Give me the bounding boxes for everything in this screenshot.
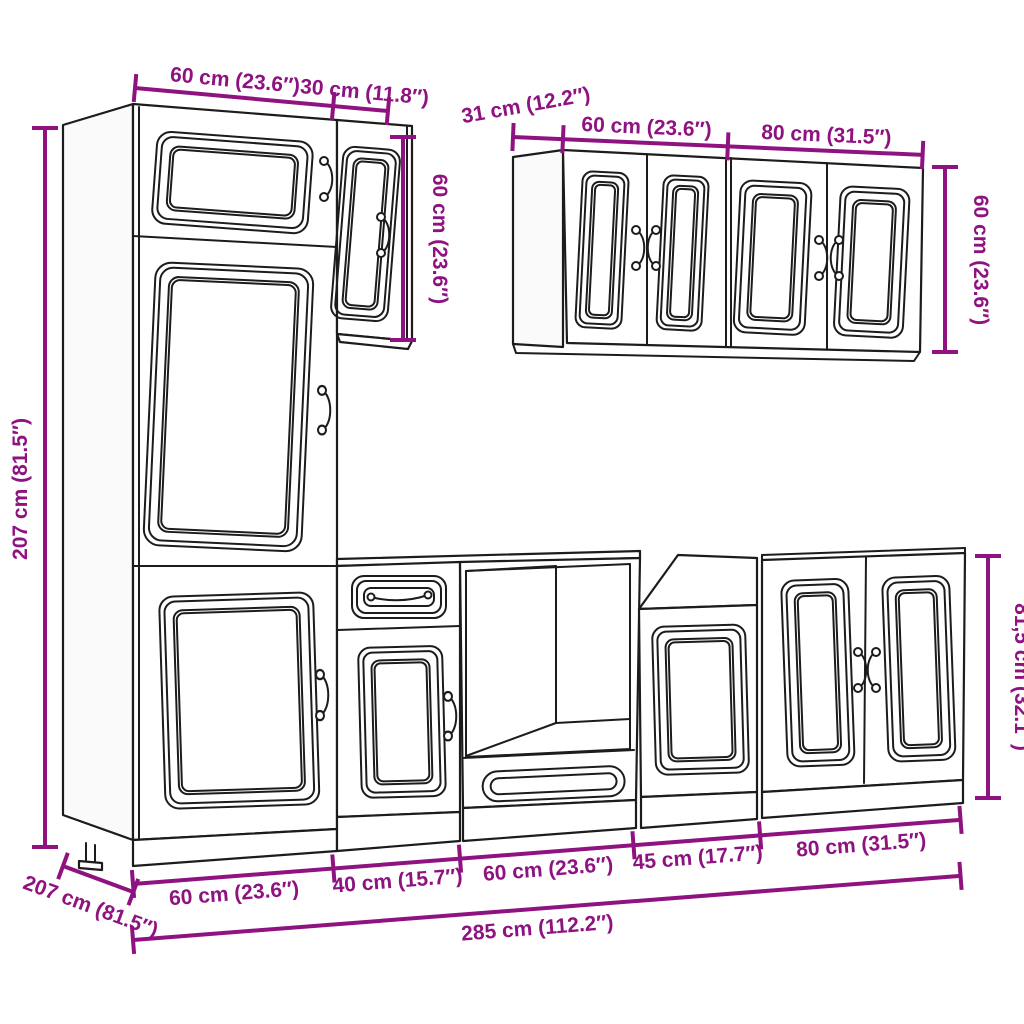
dim-label-small-cab-height: 60 cm (23.6″) — [428, 174, 451, 304]
plinth — [463, 800, 636, 841]
dim-label-base-1: 60 cm (23.6″) — [168, 877, 300, 910]
dim-label-total-width: 285 cm (112.2″) — [460, 911, 614, 946]
back-panel — [639, 555, 757, 609]
base-drawer-unit — [337, 562, 460, 851]
dim-label-wall-60: 60 cm (23.6″) — [581, 113, 712, 142]
plinth — [337, 812, 460, 851]
dim-label-tall-height: 207 cm (81.5″) — [9, 418, 32, 560]
dim-tall-height: 207 cm (81.5″) — [9, 128, 58, 847]
dim-label-wall-80: 80 cm (31.5″) — [761, 121, 892, 150]
dim-label-wall-height: 60 cm (23.6″) — [969, 195, 992, 325]
plinth — [641, 792, 757, 828]
dim-label-base-3: 60 cm (23.6″) — [482, 853, 614, 886]
small-wall-cabinet — [330, 120, 412, 349]
dim-wall-height: 60 cm (23.6″) — [932, 167, 992, 352]
kitchen-cabinet-dimension-diagram: 60 cm (23.6″) 30 cm (11.8″) 60 cm (23.6″… — [0, 0, 1024, 1024]
base-cabinet-80 — [762, 548, 965, 818]
dim-label-wall-depth: 31 cm (12.2″) — [460, 83, 592, 128]
dim-label-base-4: 45 cm (17.7″) — [632, 841, 764, 874]
dim-label-base-height: 81,5 cm (32.1″) — [1010, 603, 1024, 751]
wall-cabinet-group — [513, 150, 923, 361]
base-cabinet-45 — [639, 555, 757, 828]
oven-base-cabinet — [460, 558, 640, 841]
tall-cabinet — [63, 104, 337, 870]
dim-base-height: 81,5 cm (32.1″) — [975, 556, 1024, 798]
dim-label-base-5: 80 cm (31.5″) — [795, 829, 927, 862]
cabinet-leg — [79, 843, 102, 870]
diagram-canvas: 60 cm (23.6″) 30 cm (11.8″) 60 cm (23.6″… — [0, 0, 1024, 1024]
dim-label-base-2: 40 cm (15.7″) — [332, 865, 464, 898]
